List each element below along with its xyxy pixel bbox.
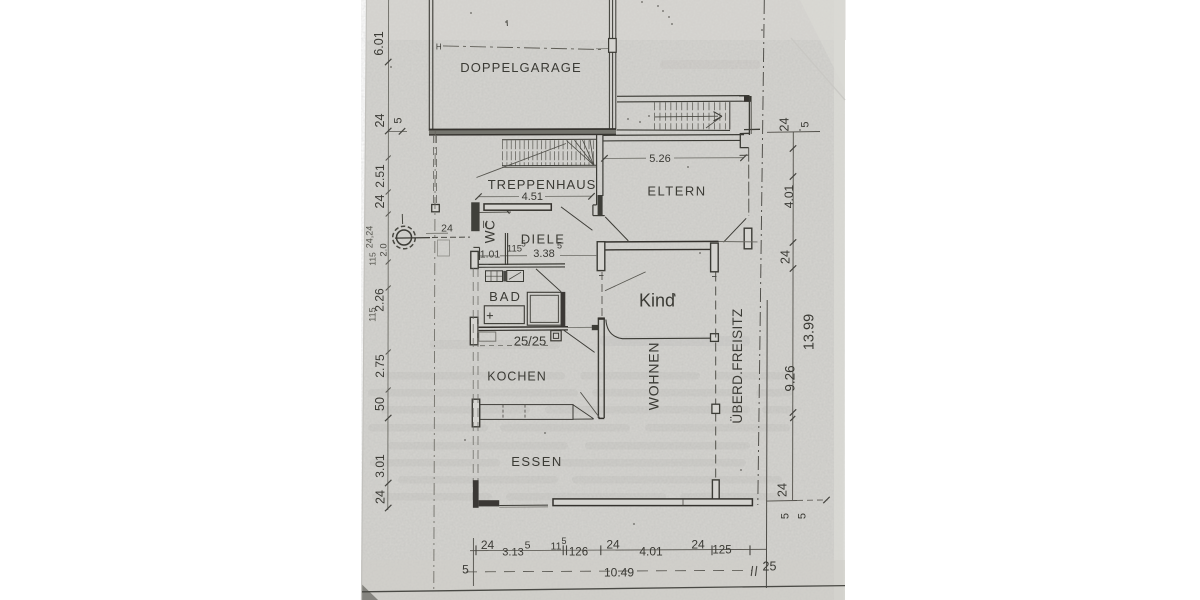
svg-text:5: 5 [561,536,566,546]
svg-text:5: 5 [797,513,809,519]
svg-text:4.01: 4.01 [782,184,796,208]
svg-text:5.26: 5.26 [649,153,670,165]
svg-text:24: 24 [373,114,387,128]
svg-text:24: 24 [606,538,620,552]
svg-text:24: 24 [778,118,792,132]
svg-text:TREPPENHAUS: TREPPENHAUS [488,177,597,192]
svg-text:25/25: 25/25 [514,334,547,349]
svg-text:3.38: 3.38 [533,248,554,260]
svg-text:3.13: 3.13 [502,547,523,559]
svg-text:ÜBERD.FREISITZ: ÜBERD.FREISITZ [730,308,745,423]
svg-text:1.01: 1.01 [480,249,501,261]
svg-text:5: 5 [393,117,405,123]
svg-text:115: 115 [368,252,378,266]
svg-text:5: 5 [780,513,792,519]
svg-text:4.01: 4.01 [639,545,663,559]
svg-text:24: 24 [373,195,387,209]
svg-text:2.51: 2.51 [373,164,387,188]
svg-text:5: 5 [521,240,526,249]
svg-text:11: 11 [551,541,562,553]
svg-text:5: 5 [525,540,531,552]
svg-text:13.99: 13.99 [802,314,818,350]
svg-text:24: 24 [691,538,705,552]
svg-text:25: 25 [763,560,777,574]
svg-text:KOCHEN: KOCHEN [487,370,546,384]
svg-text:BAD: BAD [489,289,522,304]
svg-text:WOHNEN: WOHNEN [646,342,662,411]
svg-text:5: 5 [557,241,562,251]
svg-text:6.01: 6.01 [372,31,386,55]
svg-text:24: 24 [374,490,388,504]
svg-text:H: H [436,42,442,51]
svg-text:10.49: 10.49 [604,566,634,580]
svg-text:9.26: 9.26 [783,365,798,391]
svg-text:115: 115 [368,307,378,321]
svg-text:24: 24 [441,223,453,235]
svg-text:125: 125 [712,545,731,557]
svg-text:24: 24 [779,250,793,264]
svg-text:5: 5 [800,121,812,127]
svg-text:4.51: 4.51 [522,191,543,203]
svg-text:DOPPELGARAGE: DOPPELGARAGE [460,60,582,75]
svg-text:Kind: Kind [639,291,675,311]
svg-text:2.0: 2.0 [379,243,390,256]
svg-text:50: 50 [373,397,387,411]
svg-text:115: 115 [507,244,522,255]
svg-text:24: 24 [481,538,495,552]
svg-text:ESSEN: ESSEN [511,454,563,469]
svg-text:126: 126 [569,547,588,559]
svg-text:2.75: 2.75 [373,354,387,378]
svg-text:24: 24 [776,483,790,497]
svg-text:WC: WC [483,220,498,244]
svg-text:24,24: 24,24 [365,226,375,249]
svg-text:ELTERN: ELTERN [647,184,706,199]
svg-text:5: 5 [462,563,469,577]
svg-text:3.01: 3.01 [373,454,387,478]
